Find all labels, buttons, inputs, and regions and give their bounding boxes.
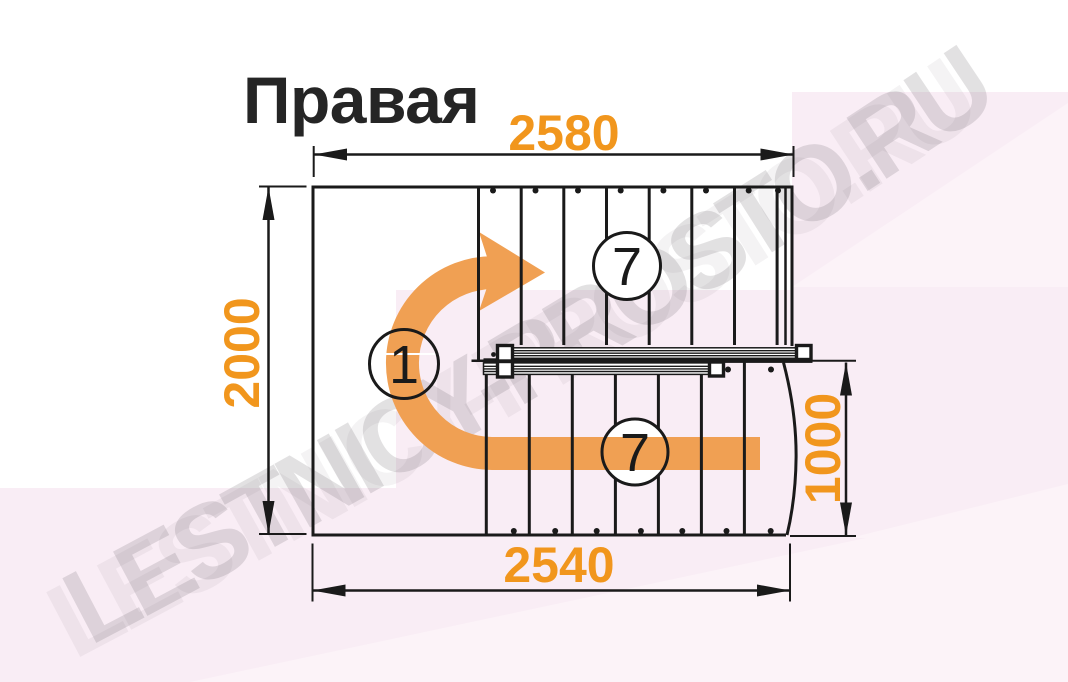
svg-text:2580: 2580: [508, 105, 619, 161]
svg-text:Правая: Правая: [243, 63, 479, 137]
svg-text:1000: 1000: [795, 393, 851, 504]
svg-text:7: 7: [612, 237, 642, 297]
svg-text:2540: 2540: [503, 537, 614, 593]
svg-text:1: 1: [389, 335, 419, 395]
svg-text:2000: 2000: [214, 297, 270, 408]
svg-text:7: 7: [620, 423, 650, 483]
